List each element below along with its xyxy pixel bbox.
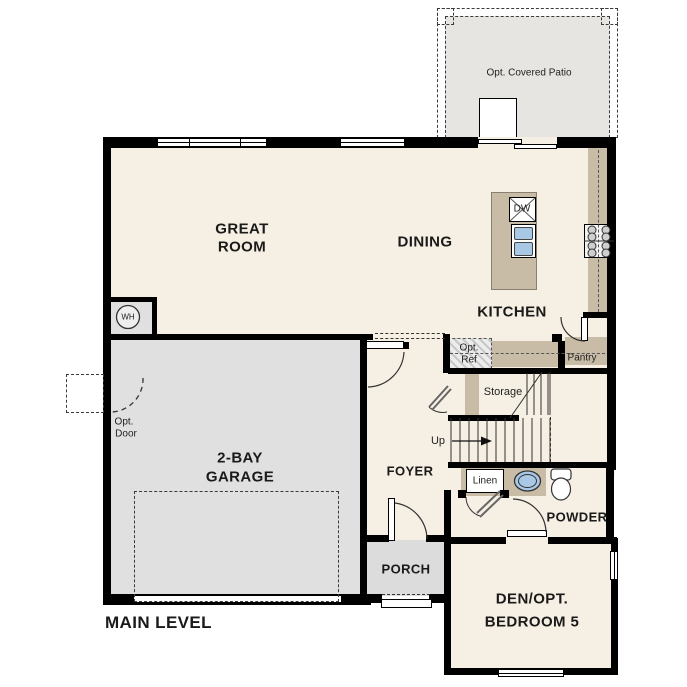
opt-door-label-2: Door <box>115 429 137 440</box>
sliding-door-panel <box>514 144 557 149</box>
up-label: Up <box>431 435 445 447</box>
powder-door <box>507 530 547 537</box>
powder-sink-counter <box>509 467 546 496</box>
wall <box>607 137 616 470</box>
main-level-label: MAIN LEVEL <box>105 613 212 633</box>
foyer-opening-line <box>375 338 445 339</box>
linen-label: Linen <box>473 476 497 487</box>
wall <box>360 535 389 542</box>
window <box>498 669 564 677</box>
storage-label: Storage <box>484 386 523 398</box>
patio-post-right <box>601 8 618 25</box>
floor-plan: Opt. Covered Patio <box>0 0 687 687</box>
porch-step <box>381 599 432 608</box>
garage-label: 2-BAY <box>217 450 263 467</box>
wh-label: WH <box>121 313 134 322</box>
kitchen-label: KITCHEN <box>477 304 546 321</box>
porch-label: PORCH <box>382 562 431 577</box>
sink-basin-2 <box>514 242 533 256</box>
great-room-label-2: ROOM <box>218 239 266 256</box>
den-label: DEN/OPT. <box>496 591 568 608</box>
wall <box>606 465 614 543</box>
opt-ref-label-2: Ref <box>461 355 477 366</box>
patio-post-left <box>437 8 454 25</box>
window <box>157 138 267 147</box>
sink-basin-1 <box>514 227 533 240</box>
wall <box>552 334 562 342</box>
foyer-label: FOYER <box>387 464 434 479</box>
wall <box>448 415 519 421</box>
wall <box>458 490 466 498</box>
wall <box>103 137 111 605</box>
wall <box>448 368 615 374</box>
powder-label: POWDER <box>547 510 608 525</box>
wall <box>500 490 509 498</box>
window <box>610 551 618 580</box>
wall <box>360 334 367 602</box>
front-door <box>388 498 395 541</box>
wall <box>444 490 451 675</box>
patio-label: Opt. Covered Patio <box>486 68 571 79</box>
wall <box>103 334 373 340</box>
den-label-2: BEDROOM 5 <box>485 614 579 631</box>
garage-parking-outline <box>134 491 339 602</box>
wall <box>448 462 614 468</box>
wall <box>108 297 157 302</box>
wall <box>152 297 157 337</box>
wall <box>426 535 446 542</box>
wall <box>558 341 565 370</box>
window <box>340 138 405 147</box>
dw-label: DW <box>514 204 531 215</box>
powder-door-opening <box>506 537 548 544</box>
opt-door-label: Opt. <box>115 417 134 428</box>
garage-entry-door <box>366 341 404 349</box>
patio-landing <box>479 98 517 138</box>
stair-rail-line <box>550 417 551 462</box>
garage-label-2: GARAGE <box>206 469 274 486</box>
dining-label: DINING <box>398 234 453 251</box>
kitchen-door <box>581 317 588 341</box>
hall-counter <box>492 341 559 367</box>
foyer-opening-line <box>375 333 445 334</box>
optional-door-outline <box>66 374 104 413</box>
great-room-label: GREAT <box>215 221 268 238</box>
counter-centerline <box>598 150 599 312</box>
porch-edge-line <box>382 594 430 595</box>
storage-wall-strip <box>465 372 479 416</box>
pantry-label: Pantry <box>568 353 597 364</box>
opt-ref-label: Opt. <box>460 343 479 354</box>
wall <box>367 594 382 603</box>
